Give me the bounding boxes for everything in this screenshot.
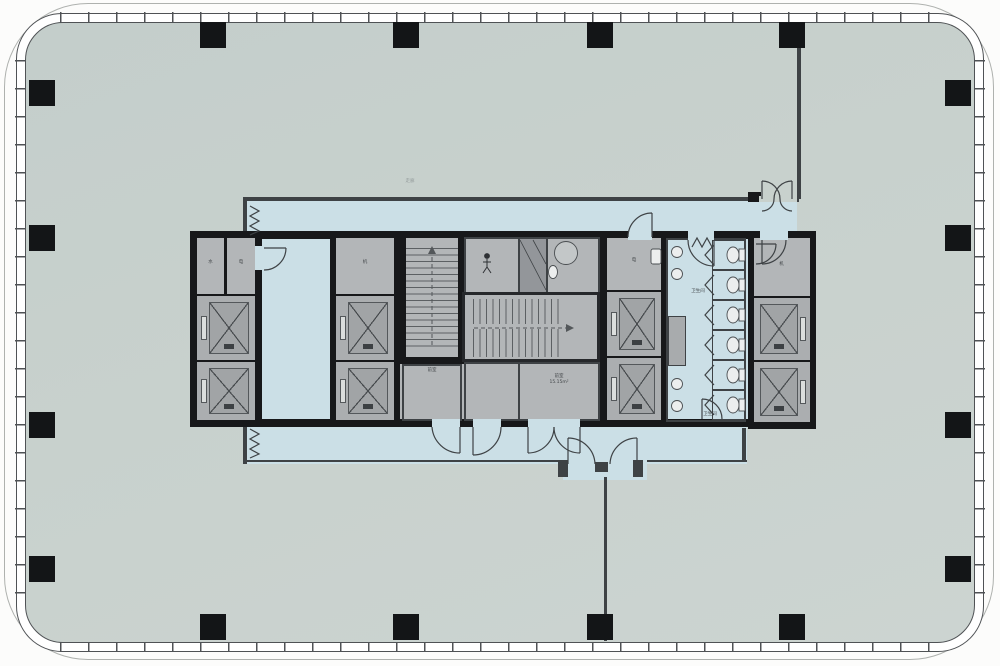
toilet-tank-icon bbox=[739, 339, 745, 351]
room-name: 前室 bbox=[555, 374, 564, 379]
door-swing-icon bbox=[264, 248, 286, 270]
column bbox=[29, 225, 55, 251]
urinal-icon bbox=[672, 247, 683, 258]
toilet-icon bbox=[727, 397, 739, 413]
column bbox=[945, 556, 971, 582]
column bbox=[393, 22, 419, 48]
person-icon bbox=[485, 254, 490, 259]
toilet-tank-icon bbox=[739, 369, 745, 381]
room-label: 卫生间 bbox=[690, 412, 730, 418]
toilet-tank-icon bbox=[739, 399, 745, 411]
toilet-tank-icon bbox=[739, 309, 745, 321]
column bbox=[29, 80, 55, 106]
toilet-tank-icon bbox=[739, 249, 745, 261]
shaft-hatch bbox=[520, 240, 546, 290]
column bbox=[587, 22, 613, 48]
door-swing-icon bbox=[554, 427, 580, 453]
room-label: 前室 bbox=[402, 368, 462, 374]
accordion-door-icon bbox=[250, 429, 259, 458]
accordion-door-icon bbox=[250, 206, 259, 235]
room-label: 前室 15.15m² bbox=[520, 374, 598, 385]
column bbox=[945, 80, 971, 106]
room-label: 电 bbox=[227, 260, 255, 266]
door-swing-icon bbox=[762, 199, 792, 211]
urinal-icon bbox=[672, 269, 683, 280]
double-door-swing-icon bbox=[762, 181, 792, 199]
corridor-label: 走廊 bbox=[388, 179, 432, 185]
column bbox=[200, 614, 226, 640]
room-label: 卫生间 bbox=[678, 289, 718, 295]
toilet-icon bbox=[727, 247, 739, 263]
toilet-tank-icon bbox=[739, 279, 745, 291]
toilet-icon bbox=[549, 266, 558, 279]
room-label: 机 bbox=[754, 262, 809, 268]
room-label: 电 bbox=[607, 258, 661, 264]
person-icon bbox=[483, 259, 491, 273]
door-swing-icon bbox=[568, 438, 595, 464]
door-swing-icon bbox=[528, 427, 554, 453]
column bbox=[29, 556, 55, 582]
room-area: 15.15m² bbox=[549, 380, 568, 385]
column bbox=[945, 225, 971, 251]
stall-door-icons bbox=[705, 245, 714, 415]
floor-plan: 水 电 机 电 机 前室 前室 15.15m² 卫生间 卫生间 走廊 bbox=[0, 0, 1000, 666]
linework-overlay bbox=[0, 0, 1000, 666]
toilet-icon bbox=[727, 337, 739, 353]
door-swing-icon bbox=[473, 427, 501, 455]
privacy-screen-icon bbox=[692, 238, 712, 247]
door-swing-icon bbox=[432, 427, 460, 453]
urinal-icon bbox=[672, 379, 683, 390]
stair-arrow-icon bbox=[566, 324, 574, 332]
door-swing-icon bbox=[610, 438, 637, 464]
door-swing-icon bbox=[628, 213, 652, 237]
column bbox=[29, 412, 55, 438]
urinal-icon bbox=[672, 401, 683, 412]
room-label: 水 bbox=[197, 260, 224, 266]
round-basin-icon bbox=[555, 242, 578, 265]
column bbox=[945, 412, 971, 438]
column bbox=[779, 22, 805, 48]
column bbox=[393, 614, 419, 640]
toilet-icon bbox=[727, 307, 739, 323]
room-label: 机 bbox=[336, 260, 394, 266]
column bbox=[200, 22, 226, 48]
column bbox=[779, 614, 805, 640]
column bbox=[587, 614, 613, 640]
toilet-icon bbox=[727, 367, 739, 383]
toilet-icon bbox=[727, 277, 739, 293]
stair-arrow-icon bbox=[428, 246, 436, 254]
